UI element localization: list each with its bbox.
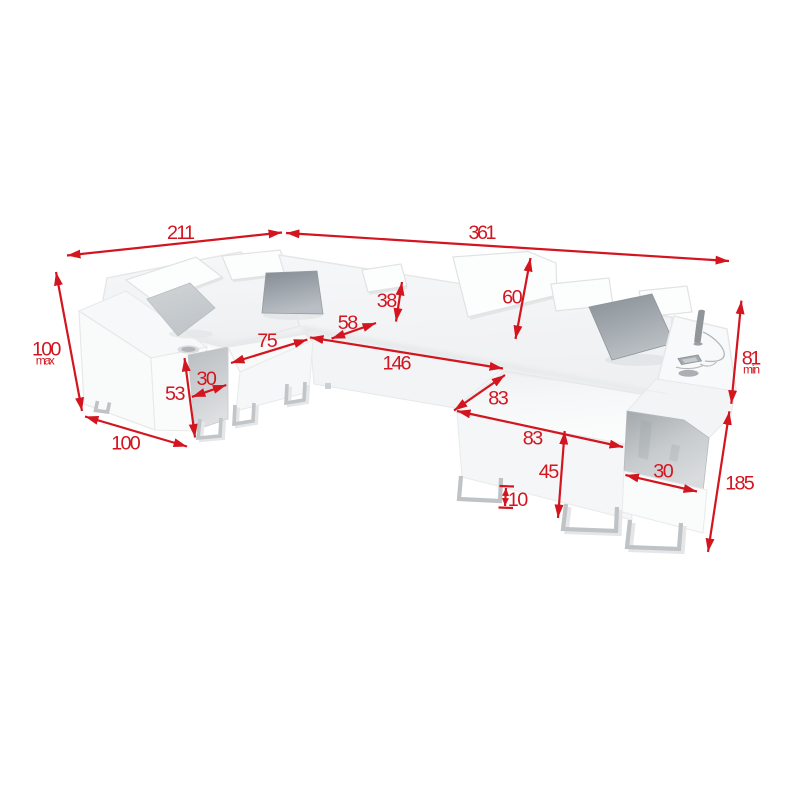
svg-text:max: max: [36, 354, 55, 368]
svg-text:146: 146: [383, 353, 412, 375]
svg-text:75: 75: [257, 330, 278, 352]
svg-text:211: 211: [167, 222, 195, 244]
svg-text:30: 30: [196, 368, 217, 390]
svg-text:58: 58: [338, 312, 359, 334]
svg-text:30: 30: [653, 461, 674, 483]
svg-text:53: 53: [165, 383, 186, 405]
svg-text:10: 10: [508, 489, 529, 511]
svg-text:100: 100: [111, 433, 141, 455]
svg-text:185: 185: [725, 473, 755, 495]
svg-text:38: 38: [377, 290, 398, 312]
svg-text:60: 60: [502, 286, 523, 308]
svg-text:361: 361: [469, 222, 497, 244]
svg-text:45: 45: [539, 461, 560, 483]
svg-text:83: 83: [488, 388, 509, 410]
svg-text:min: min: [743, 363, 760, 377]
svg-text:83: 83: [523, 428, 544, 450]
